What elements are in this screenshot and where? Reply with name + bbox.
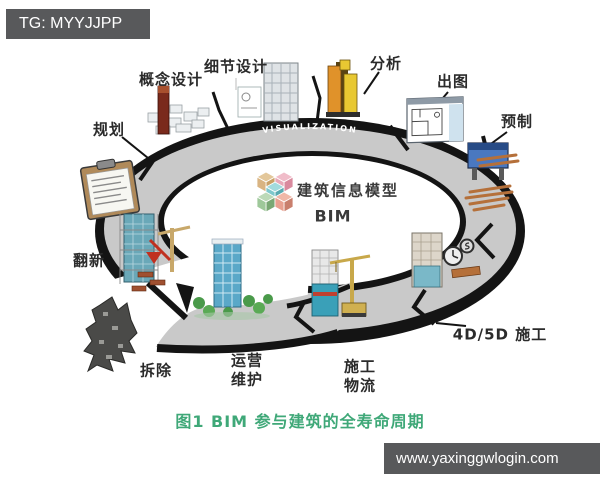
center-title: 建筑信息模型 [297, 180, 399, 201]
white-city-blocks [148, 105, 209, 134]
stage-label-4d5d-construction: 4D/5D 施工 [453, 326, 547, 345]
stage-label-prefabrication: 预制 [501, 113, 533, 132]
prefab-machine-leg [472, 168, 477, 180]
prefab-machine-top [468, 143, 508, 150]
stage-label-analysis: 分析 [370, 55, 402, 74]
stage-label-construction-logistics: 施工 物流 [344, 357, 376, 395]
prefab-machine-leg [499, 168, 504, 180]
schematic-panel [238, 87, 261, 117]
center-subtitle: BIM [314, 207, 351, 226]
glass-floors [312, 284, 338, 316]
analysis-base-slab [326, 112, 360, 117]
orange-buildings-icon [326, 60, 360, 117]
city-blocks-icon [148, 86, 209, 134]
stage-label-detail-design: 细节设计 [204, 58, 268, 77]
stage-label-drawings-output: 出图 [437, 73, 469, 92]
connector-analysis [364, 72, 379, 94]
stage-label-demolition: 拆除 [140, 362, 172, 381]
red-band [313, 292, 337, 296]
scaffold-glass-base [414, 266, 440, 287]
analysis-yellow-cap [340, 60, 350, 70]
stage-label-operation-maintenance: 运营 维护 [231, 351, 263, 389]
watermark-top-left: TG: MYYJJPP [6, 9, 150, 39]
divider [313, 76, 320, 122]
analysis-yellow-tower [344, 74, 357, 116]
plan-sidebar [449, 104, 463, 141]
clipboard-icon [80, 156, 140, 219]
bim-lifecycle-figure: VISUALIZATION [0, 0, 600, 480]
analysis-orange-tower [328, 66, 341, 114]
loader-treads [342, 313, 366, 317]
clipboard-paper [86, 168, 134, 215]
figure-caption: 图1 BIM 参与建筑的全寿命周期 [0, 408, 600, 432]
frame-floors [312, 250, 338, 284]
divider [213, 92, 230, 133]
red-tower-model-icon [158, 86, 169, 134]
stage-label-planning: 规划 [93, 121, 125, 140]
stage-label-renovation: 翻新 [73, 252, 105, 271]
connector-planning [122, 137, 148, 158]
stage-label-concept-design: 概念设计 [139, 71, 203, 90]
watermark-url: www.yaxinggwlogin.com [384, 443, 600, 474]
ops-roof [212, 239, 243, 244]
floorplan-window-icon [407, 97, 463, 143]
